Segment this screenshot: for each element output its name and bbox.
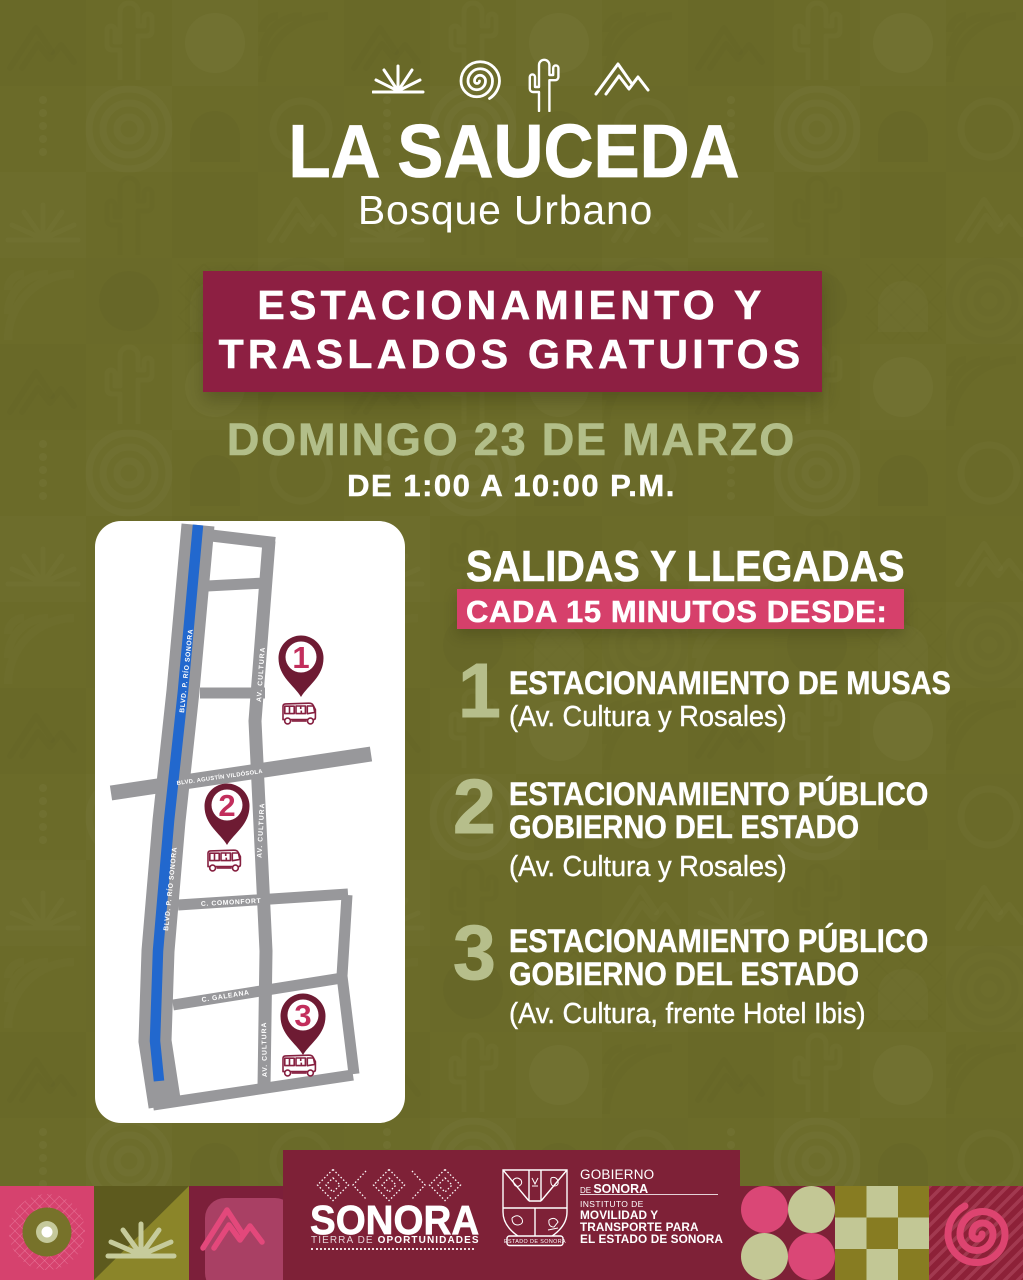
svg-text:3: 3 <box>294 998 311 1033</box>
svg-text:ESTADO DE SONORA: ESTADO DE SONORA <box>504 1239 566 1245</box>
svg-text:1: 1 <box>292 640 309 675</box>
svg-text:AV. CULTURA: AV. CULTURA <box>261 1022 269 1078</box>
svg-text:2: 2 <box>218 788 235 823</box>
